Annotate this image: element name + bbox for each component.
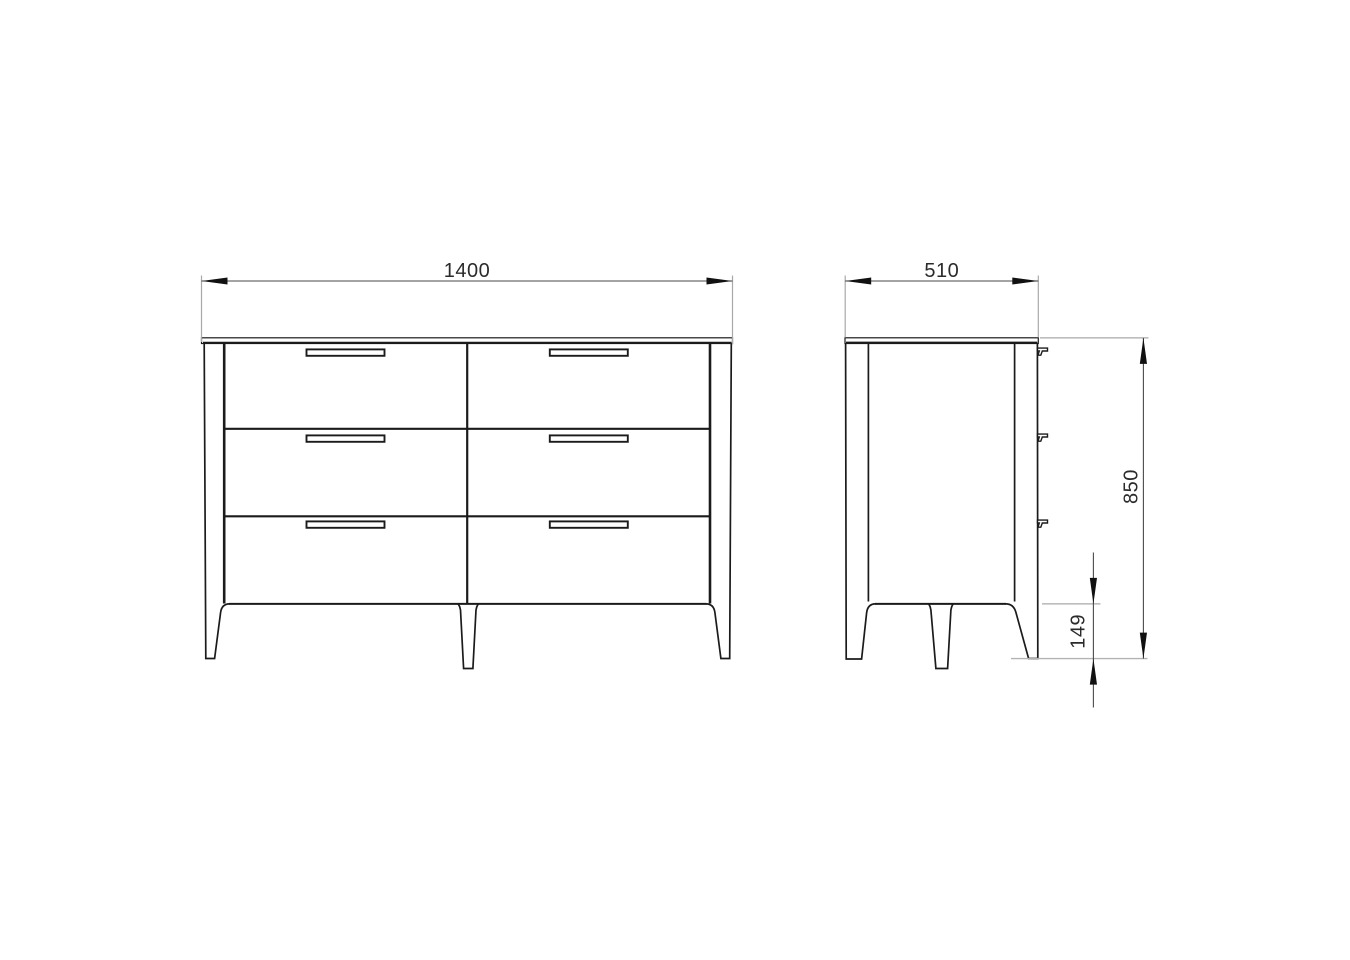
dimension-height: 850 <box>1011 338 1149 659</box>
arrowhead-right <box>1012 278 1038 285</box>
technical-drawing-page: 1400 510 850 149 <box>0 0 1350 960</box>
drawer-handle <box>307 349 385 355</box>
dimension-width: 1400 <box>202 260 733 345</box>
arrowhead-bottom <box>1140 633 1147 659</box>
arrowhead-left <box>845 278 871 285</box>
side-view <box>845 338 1048 669</box>
arrowhead-left <box>202 278 228 285</box>
dimension-leg-height: 149 <box>1042 553 1101 708</box>
drawer-handle <box>550 435 628 441</box>
side-handle-profile <box>1038 520 1048 527</box>
drawer-handle <box>550 349 628 355</box>
drawer-handle <box>550 521 628 527</box>
arrowhead-right <box>707 278 733 285</box>
dim-leg-height-value: 149 <box>1067 614 1089 649</box>
side-front-edge-and-leg <box>1006 344 1038 659</box>
arrowhead-up <box>1090 659 1097 685</box>
side-middle-leg <box>929 604 953 669</box>
front-view <box>202 338 733 669</box>
side-back-edge-and-leg <box>846 344 876 660</box>
arrowhead-down <box>1090 578 1097 604</box>
drawer-handle <box>307 435 385 441</box>
dim-depth-value: 510 <box>924 260 959 282</box>
drawer-handle <box>307 521 385 527</box>
front-middle-leg <box>458 604 478 669</box>
side-handle-profile <box>1038 348 1048 355</box>
side-handle-profile <box>1038 434 1048 441</box>
dim-height-value: 850 <box>1120 469 1142 504</box>
dim-width-value: 1400 <box>444 260 491 282</box>
front-left-side-and-leg <box>204 344 229 659</box>
technical-drawing-canvas: 1400 510 850 149 <box>0 0 1350 960</box>
arrowhead-top <box>1140 338 1147 364</box>
dimension-depth: 510 <box>845 260 1038 338</box>
